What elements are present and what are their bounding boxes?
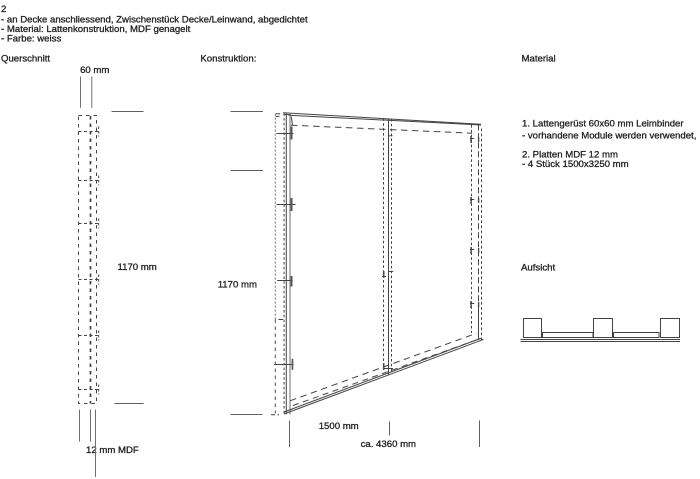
svg-text:1500 mm: 1500 mm xyxy=(319,421,359,432)
svg-text:Aufsicht: Aufsicht xyxy=(521,262,555,273)
svg-text:Querschnitt: Querschnitt xyxy=(1,54,50,65)
svg-text:60 mm: 60 mm xyxy=(80,65,109,76)
svg-text:12 mm MDF: 12 mm MDF xyxy=(86,445,139,456)
svg-text:- Farbe: weiss: - Farbe: weiss xyxy=(1,33,61,44)
svg-text:ca. 4360 mm: ca. 4360 mm xyxy=(361,439,416,450)
svg-text:Konstruktion:: Konstruktion: xyxy=(200,54,256,65)
svg-text:- 4 Stück 1500x3250 mm: - 4 Stück 1500x3250 mm xyxy=(522,159,629,170)
svg-text:- vorhandene Module werden ver: - vorhandene Module werden verwendet, xyxy=(522,130,696,141)
svg-text:1170 mm: 1170 mm xyxy=(118,262,157,273)
svg-text:1. Lattengerüst 60x60 mm Leimb: 1. Lattengerüst 60x60 mm Leimbinder xyxy=(522,119,684,130)
svg-text:Material: Material xyxy=(522,54,556,65)
svg-text:1170 mm: 1170 mm xyxy=(218,279,257,290)
